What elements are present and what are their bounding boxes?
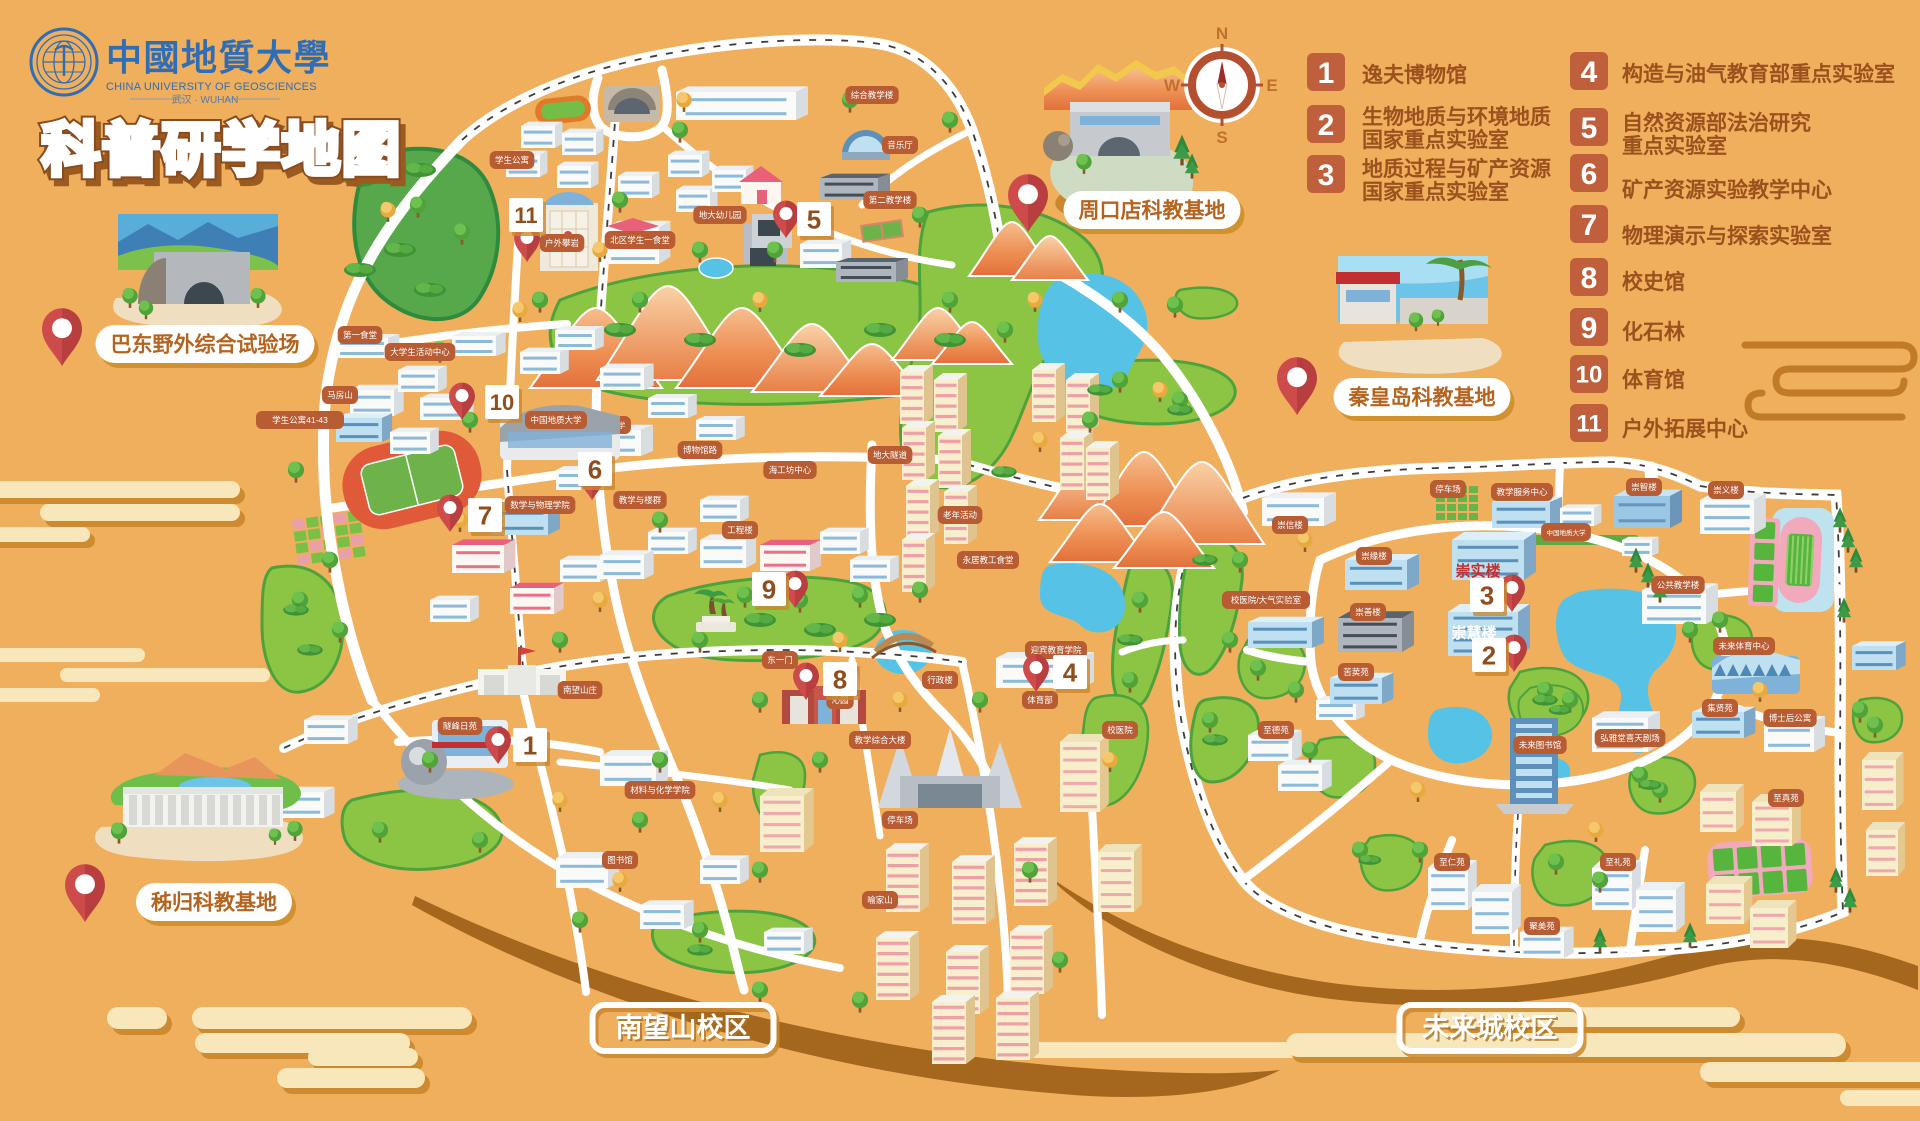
- svg-text:北区学生一食堂: 北区学生一食堂: [610, 235, 670, 245]
- svg-text:数学与物理学院: 数学与物理学院: [510, 500, 570, 510]
- svg-text:大学生活动中心: 大学生活动中心: [390, 347, 450, 357]
- svg-text:教学服务中心: 教学服务中心: [1496, 487, 1548, 497]
- svg-text:聚美苑: 聚美苑: [1529, 921, 1555, 931]
- svg-text:未来体育中心: 未来体育中心: [1718, 641, 1770, 651]
- svg-text:音乐厅: 音乐厅: [887, 140, 913, 150]
- svg-text:6: 6: [1581, 158, 1598, 191]
- svg-text:地大幼儿园: 地大幼儿园: [699, 210, 742, 220]
- svg-text:南望山校区: 南望山校区: [616, 1012, 751, 1043]
- svg-text:博物馆路: 博物馆路: [683, 445, 718, 455]
- svg-text:武汉 · WUHAN: 武汉 · WUHAN: [172, 93, 239, 106]
- svg-text:老年活动: 老年活动: [943, 510, 978, 520]
- svg-text:崇实楼: 崇实楼: [1455, 562, 1500, 580]
- svg-text:中国地质大学: 中国地质大学: [530, 415, 582, 425]
- svg-text:永居教工食堂: 永居教工食堂: [962, 555, 1013, 565]
- svg-text:4: 4: [1063, 657, 1078, 687]
- svg-text:科普研学地图: 科普研学地图: [42, 118, 402, 183]
- svg-text:巴东野外综合试验场: 巴东野外综合试验场: [111, 333, 300, 357]
- svg-text:4: 4: [1581, 56, 1598, 89]
- svg-text:崇智楼: 崇智楼: [1631, 482, 1657, 492]
- svg-text:2: 2: [1482, 640, 1496, 670]
- svg-text:至礼苑: 至礼苑: [1605, 857, 1631, 867]
- svg-text:博士后公寓: 博士后公寓: [1769, 713, 1812, 723]
- svg-text:崇善楼: 崇善楼: [1355, 607, 1381, 617]
- svg-text:10: 10: [1576, 362, 1603, 389]
- svg-text:至德苑: 至德苑: [1263, 725, 1289, 735]
- svg-text:崇缘楼: 崇缘楼: [1361, 551, 1387, 561]
- svg-text:户外拓展中心: 户外拓展中心: [1622, 417, 1748, 441]
- svg-text:教学综合大楼: 教学综合大楼: [854, 735, 906, 745]
- svg-text:W: W: [1164, 76, 1181, 95]
- svg-text:至仁苑: 至仁苑: [1439, 857, 1465, 867]
- svg-text:11: 11: [514, 203, 537, 228]
- svg-text:迎宾教育学院: 迎宾教育学院: [1030, 645, 1082, 655]
- svg-text:构造与油气教育部重点实验室: 构造与油气教育部重点实验室: [1622, 62, 1895, 86]
- svg-text:自然资源部法治研究: 自然资源部法治研究: [1622, 111, 1811, 135]
- svg-text:户外攀岩: 户外攀岩: [545, 238, 580, 248]
- svg-text:3: 3: [1318, 159, 1335, 192]
- svg-text:N: N: [1216, 24, 1228, 43]
- svg-text:海工坊中心: 海工坊中心: [769, 465, 812, 475]
- svg-text:中國地質大學: 中國地質大學: [106, 37, 331, 78]
- svg-text:学生公寓: 学生公寓: [495, 155, 529, 165]
- svg-text:秦皇岛科教基地: 秦皇岛科教基地: [1348, 386, 1496, 410]
- svg-text:中国地质大学: 中国地质大学: [1547, 528, 1587, 537]
- svg-text:材料与化学学院: 材料与化学学院: [630, 785, 690, 795]
- svg-text:集贤苑: 集贤苑: [1707, 703, 1733, 713]
- svg-text:地质过程与矿产资源: 地质过程与矿产资源: [1362, 157, 1551, 181]
- svg-text:物理演示与探索实验室: 物理演示与探索实验室: [1622, 224, 1832, 248]
- svg-text:喻家山: 喻家山: [867, 895, 893, 905]
- svg-text:地大隧道: 地大隧道: [873, 450, 908, 460]
- svg-text:6: 6: [588, 454, 602, 484]
- svg-text:7: 7: [478, 500, 492, 530]
- svg-text:崇信楼: 崇信楼: [1277, 520, 1303, 530]
- svg-text:马房山: 马房山: [327, 390, 353, 400]
- svg-text:弘雅堂喜天剧场: 弘雅堂喜天剧场: [1600, 733, 1660, 743]
- svg-text:E: E: [1266, 76, 1277, 95]
- svg-text:10: 10: [490, 390, 514, 415]
- svg-text:苦荬苑: 苦荬苑: [1343, 667, 1369, 677]
- svg-text:1: 1: [1318, 57, 1335, 90]
- svg-text:校医院: 校医院: [1107, 725, 1133, 735]
- svg-text:国家重点实验室: 国家重点实验室: [1362, 180, 1509, 204]
- svg-text:周口店科教基地: 周口店科教基地: [1079, 199, 1226, 223]
- svg-text:5: 5: [807, 204, 821, 234]
- svg-text:校医院/大气实验室: 校医院/大气实验室: [1231, 595, 1302, 605]
- svg-text:2: 2: [1318, 109, 1335, 142]
- svg-text:南望山庄: 南望山庄: [563, 685, 598, 695]
- svg-text:逸夫博物馆: 逸夫博物馆: [1362, 63, 1467, 87]
- svg-text:隧峰日苑: 隧峰日苑: [443, 721, 478, 731]
- svg-text:至真苑: 至真苑: [1773, 793, 1799, 803]
- svg-text:3: 3: [1480, 580, 1494, 610]
- svg-text:8: 8: [833, 664, 847, 694]
- svg-text:工程楼: 工程楼: [727, 525, 753, 535]
- svg-text:教学与楼群: 教学与楼群: [619, 495, 662, 505]
- svg-text:东一门: 东一门: [767, 655, 793, 665]
- svg-text:国家重点实验室: 国家重点实验室: [1362, 128, 1509, 152]
- svg-text:7: 7: [1581, 209, 1598, 242]
- svg-text:第二教学楼: 第二教学楼: [869, 195, 912, 205]
- svg-text:CHINA UNIVERSITY OF GEOSCIENCE: CHINA UNIVERSITY OF GEOSCIENCES: [106, 81, 317, 93]
- svg-text:秭归科教基地: 秭归科教基地: [151, 891, 277, 915]
- svg-text:S: S: [1216, 128, 1227, 147]
- svg-text:矿产资源实验教学中心: 矿产资源实验教学中心: [1622, 178, 1832, 202]
- svg-text:9: 9: [1581, 312, 1598, 345]
- svg-text:停车场: 停车场: [1435, 484, 1461, 494]
- svg-text:5: 5: [1581, 112, 1598, 145]
- svg-text:生物地质与环境地质: 生物地质与环境地质: [1362, 105, 1551, 129]
- svg-text:图书馆: 图书馆: [607, 855, 633, 865]
- svg-text:校史馆: 校史馆: [1622, 270, 1685, 294]
- svg-text:公共教学楼: 公共教学楼: [1657, 580, 1700, 590]
- svg-text:11: 11: [1576, 411, 1601, 438]
- svg-text:行政楼: 行政楼: [927, 675, 953, 685]
- svg-text:停车场: 停车场: [887, 815, 913, 825]
- svg-text:未来城校区: 未来城校区: [1423, 1012, 1558, 1043]
- svg-text:9: 9: [762, 574, 776, 604]
- svg-text:崇义楼: 崇义楼: [1713, 485, 1739, 495]
- svg-text:化石林: 化石林: [1622, 320, 1685, 344]
- svg-text:8: 8: [1581, 262, 1598, 295]
- svg-text:未来图书馆: 未来图书馆: [1519, 740, 1562, 750]
- svg-text:第一食堂: 第一食堂: [343, 330, 377, 340]
- svg-text:体育部: 体育部: [1027, 695, 1053, 705]
- svg-text:体育馆: 体育馆: [1622, 368, 1685, 392]
- svg-text:学生公寓41-43: 学生公寓41-43: [272, 415, 328, 425]
- svg-text:1: 1: [523, 730, 537, 760]
- svg-text:重点实验室: 重点实验室: [1622, 134, 1727, 158]
- svg-text:综合教学楼: 综合教学楼: [851, 90, 894, 100]
